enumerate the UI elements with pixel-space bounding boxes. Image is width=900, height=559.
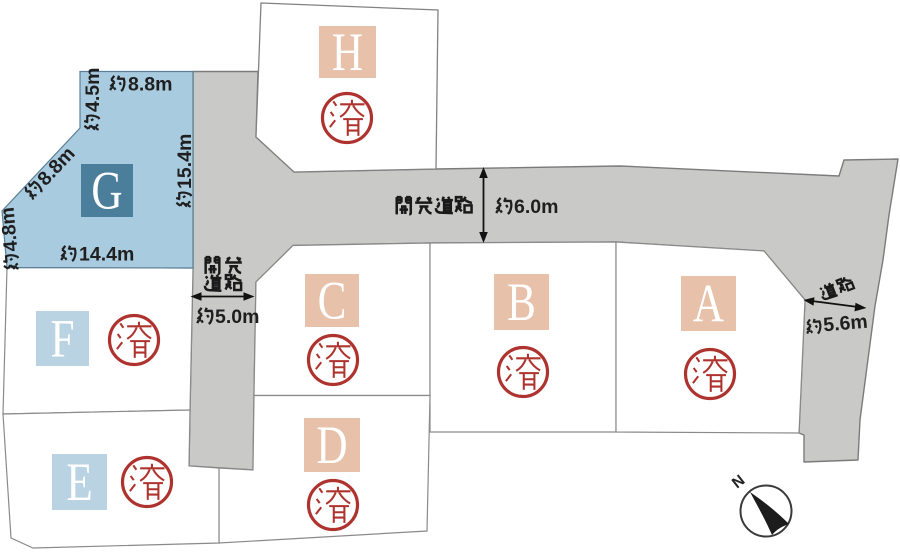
svg-text:15.4m: 15.4m: [174, 134, 196, 189]
svg-text:D: D: [316, 414, 347, 475]
svg-text:G: G: [91, 160, 122, 221]
svg-text:8.8m: 8.8m: [128, 74, 172, 96]
svg-text:B: B: [507, 271, 536, 332]
svg-text:C: C: [318, 270, 347, 331]
svg-text:5.0m: 5.0m: [215, 306, 259, 328]
svg-text:E: E: [66, 451, 92, 512]
svg-text:4.5m: 4.5m: [82, 68, 104, 112]
svg-text:4.8m: 4.8m: [0, 206, 22, 252]
svg-text:F: F: [50, 308, 74, 369]
svg-text:H: H: [332, 21, 363, 82]
svg-text:6.0m: 6.0m: [514, 196, 558, 218]
svg-text:A: A: [693, 273, 724, 334]
svg-text:5.6m: 5.6m: [822, 311, 868, 337]
svg-text:14.4m: 14.4m: [79, 244, 134, 266]
